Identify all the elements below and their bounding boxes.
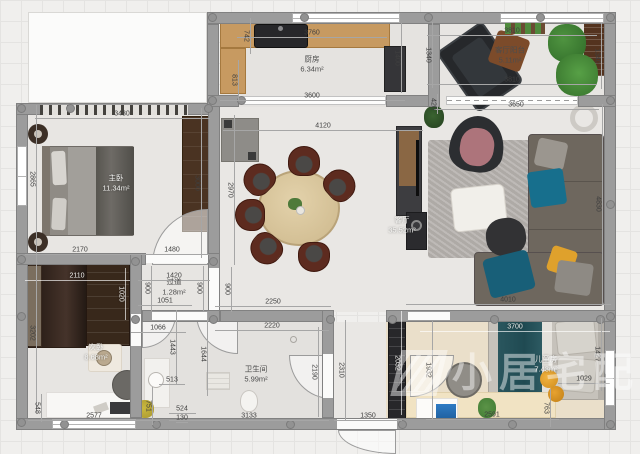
dim-line (558, 383, 610, 384)
outside-void (28, 12, 207, 103)
dim-line (434, 109, 599, 110)
dim-line (131, 332, 186, 333)
door-opening (146, 255, 208, 263)
room-label: 主卧11.34m² (103, 173, 130, 193)
dim-line (207, 312, 208, 396)
wall-segment (428, 24, 440, 107)
dim-line (203, 266, 204, 311)
wall-joint (326, 315, 335, 324)
table-centerpiece-vase (296, 206, 305, 215)
floorplan-canvas: 3760742813360014003810134013403810365042… (0, 0, 640, 454)
dim-line (601, 23, 602, 89)
dim-label: 1066 (150, 325, 166, 332)
room-label: 客厅阳台5.11m² (495, 45, 525, 65)
wall-joint (17, 418, 26, 427)
dim-label: 420 (430, 98, 437, 110)
window (17, 146, 27, 206)
wall-joint (17, 104, 26, 113)
dining-cabinet-corner (248, 152, 256, 160)
dim-label: 1932 (425, 362, 432, 378)
dim-label: 524 (176, 406, 188, 413)
cushion-gray (533, 137, 568, 171)
dim-line (318, 327, 319, 417)
door-opening (152, 312, 208, 320)
dim-label: 1340 (425, 47, 432, 63)
dim-line (152, 387, 153, 425)
dim-line (334, 420, 402, 421)
wall-joint (152, 420, 161, 429)
dim-label: 1644 (200, 346, 207, 362)
dim-line (420, 331, 610, 332)
dim-line (234, 115, 235, 265)
dim-line (36, 105, 37, 253)
tv-screen (416, 140, 419, 196)
dim-label: 3133 (241, 413, 257, 420)
dim-line (437, 94, 438, 114)
dim-line (426, 419, 559, 420)
cushion-teal (527, 168, 568, 209)
wall-joint (606, 312, 615, 321)
kids-pillow (554, 318, 597, 356)
wall-segment (208, 103, 220, 265)
dim-label: 513 (166, 377, 178, 384)
dim-line (35, 118, 210, 119)
dim-line (159, 384, 185, 385)
kitchen-counter-left (220, 48, 246, 94)
wall-joint (208, 13, 217, 22)
door-opening (209, 268, 219, 310)
room-label: 厨房6.34m² (300, 54, 323, 74)
room-name: 主卧 (103, 173, 130, 183)
dim-label: 2190 (311, 364, 318, 380)
cushion-gray (554, 260, 594, 297)
dim-label: 2250 (265, 299, 281, 306)
room-name: 次卧 (84, 342, 107, 352)
dim-label: 3600 (304, 93, 320, 100)
dim-line (238, 60, 239, 100)
dim-label: 813 (231, 74, 238, 86)
wall-segment (220, 310, 334, 322)
dim-label: 1340 (594, 48, 601, 64)
dim-line (550, 389, 551, 427)
window (605, 350, 615, 406)
wall-joint (131, 257, 140, 266)
dim-label: 4120 (315, 123, 331, 130)
wall-joint (204, 104, 213, 113)
wall-joint (131, 315, 140, 324)
room-name: 卫生间 (244, 364, 267, 374)
dim-label: 2220 (264, 323, 280, 330)
dim-line (250, 18, 251, 54)
dim-label: 3000 (194, 175, 201, 191)
dim-label: 1020 (118, 286, 125, 302)
wall-joint (606, 200, 615, 209)
room-name: 过道 (162, 277, 185, 287)
dim-line (601, 318, 602, 391)
dim-label: 2110 (69, 273, 84, 280)
dining-chair (288, 146, 320, 176)
dim-line (220, 100, 405, 101)
dim-label: 900 (196, 282, 203, 294)
room-label: 客厅35.52m² (388, 215, 416, 235)
dim-label: 2170 (72, 247, 88, 254)
dim-label: 742 (243, 30, 250, 42)
dim-label: 1480 (164, 247, 180, 254)
wall-joint (606, 96, 615, 105)
dim-line (36, 253, 37, 413)
floor-drain (290, 336, 297, 343)
dim-line (28, 420, 160, 421)
dim-label: 763 (543, 402, 550, 414)
dining-cabinet-corner (224, 120, 232, 128)
dim-label: 3810 (504, 77, 520, 84)
dim-label: 4830 (595, 196, 602, 212)
dim-label: 3202 (29, 325, 36, 341)
room-area: 7.43m² (534, 364, 557, 374)
room-label: 过道1.28m² (162, 277, 185, 297)
wall-joint (209, 315, 218, 324)
wall-joint (209, 257, 218, 266)
dim-line (135, 254, 209, 255)
wall-joint (490, 315, 499, 324)
dim-label: 3810 (504, 28, 520, 35)
wall-joint (17, 312, 26, 321)
dim-line (215, 330, 329, 331)
dim-label: 3650 (508, 102, 524, 109)
dim-line (176, 422, 188, 423)
room-area: 6.34m² (300, 64, 323, 74)
wall-joint (606, 13, 615, 22)
room-name: 客厅 (388, 215, 416, 225)
dim-label: 548 (34, 402, 41, 414)
dim-line (138, 305, 192, 306)
dim-label: 2310 (338, 362, 345, 378)
wall-joint (398, 420, 407, 429)
master-pillow (51, 151, 67, 186)
dim-line (432, 321, 433, 419)
dim-label: 2577 (86, 413, 102, 420)
dim-line (602, 104, 603, 304)
dim-label: 1443 (169, 339, 176, 355)
wall-joint (300, 13, 309, 22)
master-pillow (51, 198, 67, 231)
room-area: 11.34m² (103, 183, 130, 193)
room-area: 1.28m² (162, 287, 185, 297)
room-name: 厨房 (300, 54, 323, 64)
dim-label: 1051 (157, 298, 173, 305)
door-opening (408, 312, 450, 320)
door-opening (323, 354, 333, 398)
dim-label: 1400 (394, 50, 401, 66)
dim-label: 3700 (507, 324, 523, 331)
dim-label: 1350 (360, 413, 376, 420)
dim-line (231, 267, 232, 312)
dim-line (41, 394, 42, 422)
wall-joint (606, 420, 615, 429)
dim-line (176, 310, 177, 384)
room-area: 8.68m² (84, 352, 107, 362)
room-area: 5.99m² (244, 374, 267, 384)
wall-joint (286, 420, 295, 429)
dining-chair (298, 242, 330, 272)
room-name: 儿童房 (534, 354, 557, 364)
dim-line (201, 108, 202, 258)
door-arc (338, 430, 396, 454)
room-area: 5.11m² (495, 55, 525, 65)
dim-line (125, 268, 126, 320)
dim-label: 2865 (29, 171, 36, 187)
room-label: 次卧8.68m² (84, 342, 107, 362)
dim-line (25, 254, 135, 255)
toilet (240, 390, 258, 412)
room-label: 儿童房7.43m² (534, 354, 557, 374)
wall-joint (60, 420, 69, 429)
room-area: 35.52m² (388, 225, 416, 235)
dim-line (151, 266, 152, 311)
dining-chair (235, 199, 265, 231)
wall-joint (66, 104, 75, 113)
dim-label: 2591 (484, 412, 500, 419)
wall-joint (388, 315, 397, 324)
bathroom-sink (148, 372, 164, 388)
wall-joint (508, 420, 517, 429)
dim-label: 2032 (394, 355, 401, 371)
dim-line (345, 320, 346, 420)
dim-line (432, 22, 433, 88)
dim-line (25, 280, 130, 281)
dim-label: 900 (224, 283, 231, 295)
dim-line (223, 130, 423, 131)
dim-line (401, 311, 402, 415)
shower-bench (206, 372, 230, 390)
dim-line (406, 304, 611, 305)
dim-line (169, 420, 329, 421)
kitchen-faucet (278, 26, 283, 31)
wall-joint (536, 13, 545, 22)
dim-label: 4010 (500, 297, 516, 304)
wall-joint (17, 255, 26, 264)
dim-label: 3760 (304, 30, 320, 37)
master-bed-headboard (42, 146, 50, 236)
dim-line (427, 84, 597, 85)
dim-label: 900 (144, 282, 151, 294)
master-bed-sheet (68, 147, 96, 235)
dim-label: 130 (176, 415, 188, 422)
dim-label: 2970 (227, 182, 234, 198)
dim-line (427, 35, 597, 36)
room-name: 客厅阳台 (495, 45, 525, 55)
dim-label: 1029 (576, 376, 592, 383)
window (500, 13, 604, 23)
dim-line (215, 306, 331, 307)
dim-label: 3430 (114, 111, 130, 118)
dim-label: 751 (145, 400, 152, 412)
dim-line (237, 37, 387, 38)
dim-label: 1427 (594, 346, 601, 362)
wall-joint (424, 13, 433, 22)
potted-plant (556, 54, 598, 96)
dim-line (401, 23, 402, 93)
room-label: 卫生间5.99m² (244, 364, 267, 384)
